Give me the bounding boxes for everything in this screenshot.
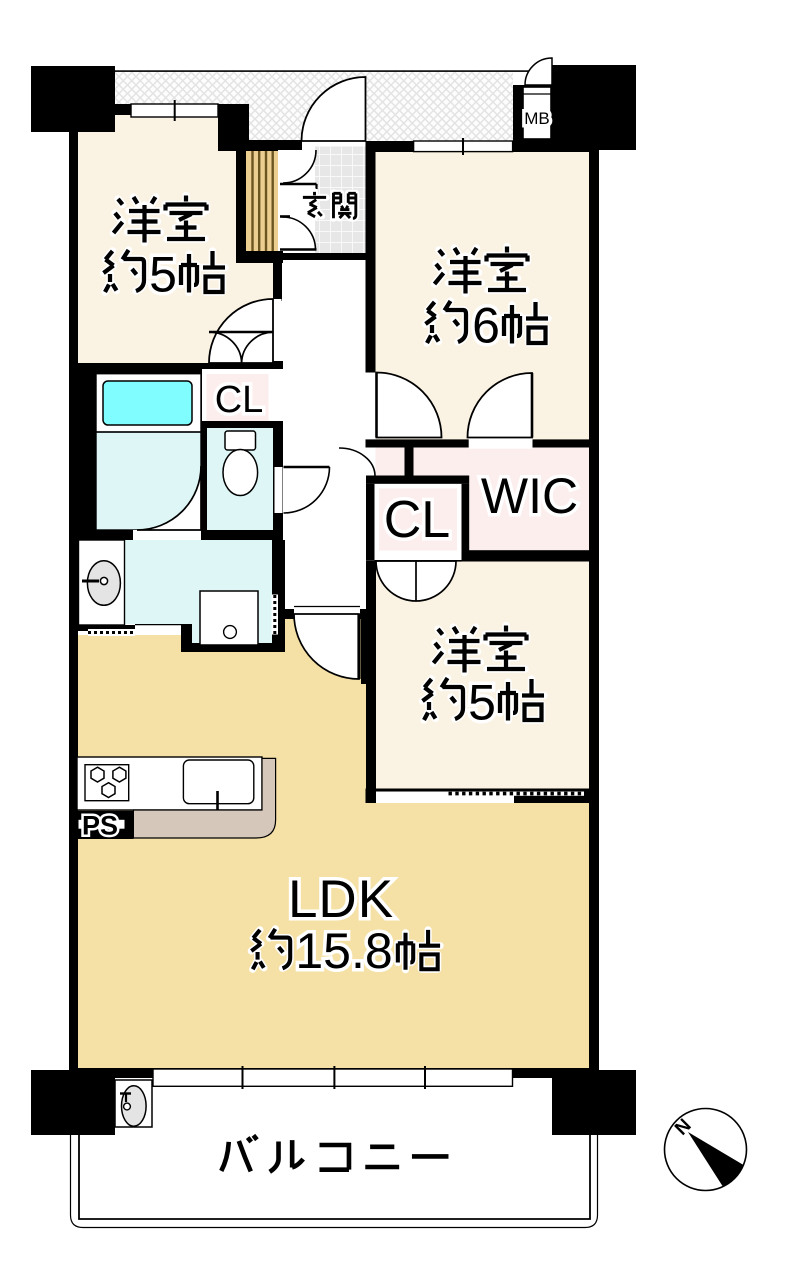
svg-text:MB: MB — [524, 109, 550, 128]
svg-text:LDK: LDK — [288, 870, 394, 929]
svg-text:5: 5 — [149, 247, 177, 303]
svg-text:PS: PS — [82, 811, 118, 841]
svg-text:15.8: 15.8 — [295, 923, 392, 979]
svg-text:WIC: WIC — [481, 468, 578, 524]
svg-text:6: 6 — [472, 298, 500, 354]
svg-text:CL: CL — [384, 491, 450, 549]
svg-text:5: 5 — [468, 675, 496, 731]
svg-text:CL: CL — [215, 379, 264, 421]
